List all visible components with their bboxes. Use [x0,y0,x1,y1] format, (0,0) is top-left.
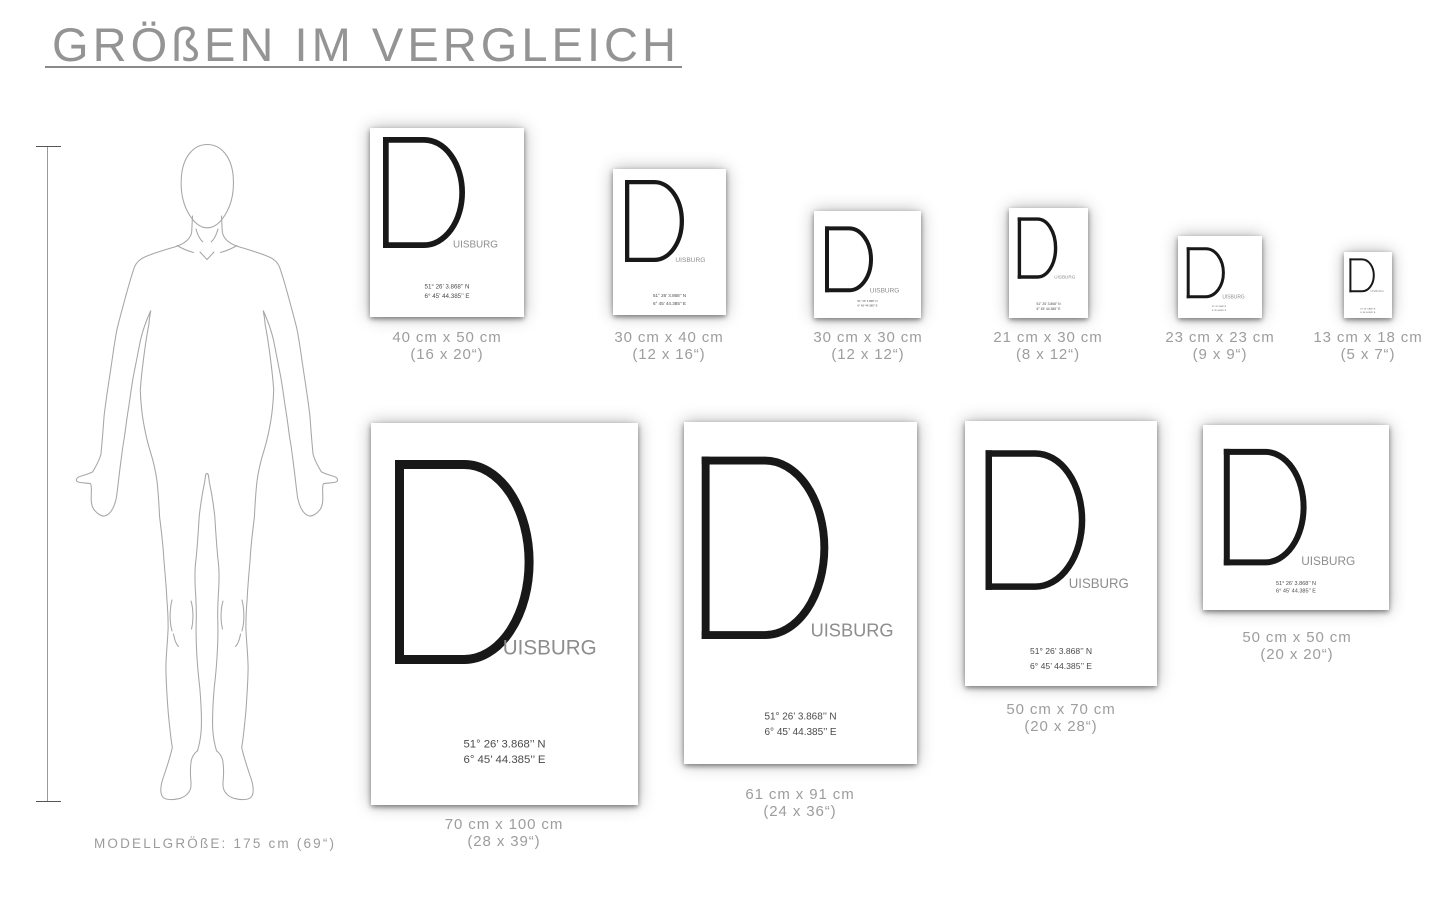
svg-text:6° 45’ 44.385’’ E: 6° 45’ 44.385’’ E [425,293,470,300]
svg-text:51° 26’ 3.868’’ N: 51° 26’ 3.868’’ N [1212,306,1227,308]
svg-text:51° 26’ 3.868’’ N: 51° 26’ 3.868’’ N [1030,646,1092,656]
svg-text:6° 45’ 44.385’’ E: 6° 45’ 44.385’’ E [858,303,878,307]
svg-text:6° 45’ 44.385’’ E: 6° 45’ 44.385’’ E [653,301,686,306]
svg-text:UISBURG: UISBURG [1301,554,1355,568]
svg-text:UISBURG: UISBURG [453,240,498,251]
svg-text:6° 45’ 44.385’’ E: 6° 45’ 44.385’’ E [1360,312,1376,314]
svg-text:6° 45’ 44.385’’ E: 6° 45’ 44.385’’ E [1030,661,1092,671]
svg-text:51° 26’ 3.868’’ N: 51° 26’ 3.868’’ N [1360,309,1375,311]
svg-text:UISBURG: UISBURG [503,636,597,660]
svg-text:51° 26’ 3.868’’ N: 51° 26’ 3.868’’ N [1276,581,1316,587]
svg-text:6° 45’ 44.385’’ E: 6° 45’ 44.385’’ E [464,754,546,766]
svg-text:UISBURG: UISBURG [1222,295,1244,301]
svg-text:UISBURG: UISBURG [1054,275,1075,281]
svg-text:UISBURG: UISBURG [811,621,894,642]
svg-text:UISBURG: UISBURG [1370,289,1384,293]
svg-text:51° 26’ 3.868’’ N: 51° 26’ 3.868’’ N [765,712,837,723]
svg-text:51° 26’ 3.868’’ N: 51° 26’ 3.868’’ N [464,739,546,751]
svg-text:MODELLGRÖßE: 175 cm (69“): MODELLGRÖßE: 175 cm (69“) [94,836,334,851]
svg-text:51° 26’ 3.868’’ N: 51° 26’ 3.868’’ N [1037,302,1062,306]
svg-text:51° 26’ 3.868’’ N: 51° 26’ 3.868’’ N [858,299,878,303]
svg-text:6° 45’ 44.385’’ E: 6° 45’ 44.385’’ E [1212,310,1227,312]
svg-text:UISBURG: UISBURG [675,257,705,264]
svg-text:UISBURG: UISBURG [870,287,900,294]
svg-text:GRÖßEN IM VERGLEICH: GRÖßEN IM VERGLEICH [52,18,684,71]
svg-text:51° 26’ 3.868’’ N: 51° 26’ 3.868’’ N [425,283,470,290]
svg-text:51° 26’ 3.868’’ N: 51° 26’ 3.868’’ N [653,293,686,298]
svg-text:6° 45’ 44.385’’ E: 6° 45’ 44.385’’ E [1276,588,1316,594]
svg-text:6° 45’ 44.385’’ E: 6° 45’ 44.385’’ E [1037,307,1062,311]
svg-text:6° 45’ 44.385’’ E: 6° 45’ 44.385’’ E [765,727,837,738]
svg-text:UISBURG: UISBURG [1069,576,1129,591]
